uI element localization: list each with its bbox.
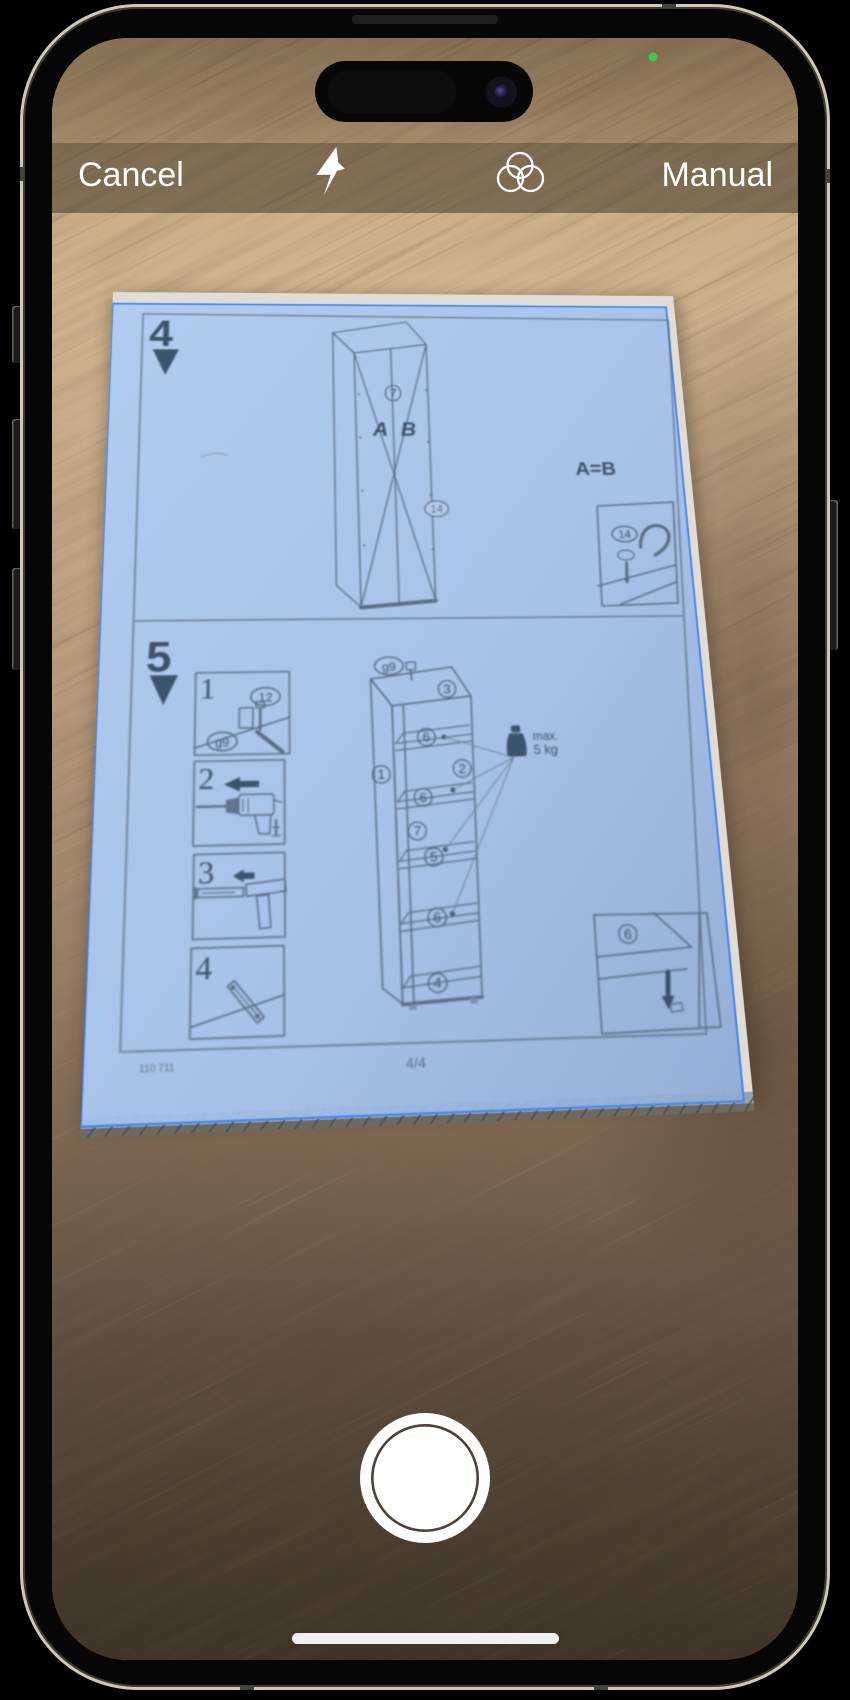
svg-text:Cancel: Cancel: [78, 156, 184, 194]
svg-text:Manual: Manual: [661, 156, 773, 194]
